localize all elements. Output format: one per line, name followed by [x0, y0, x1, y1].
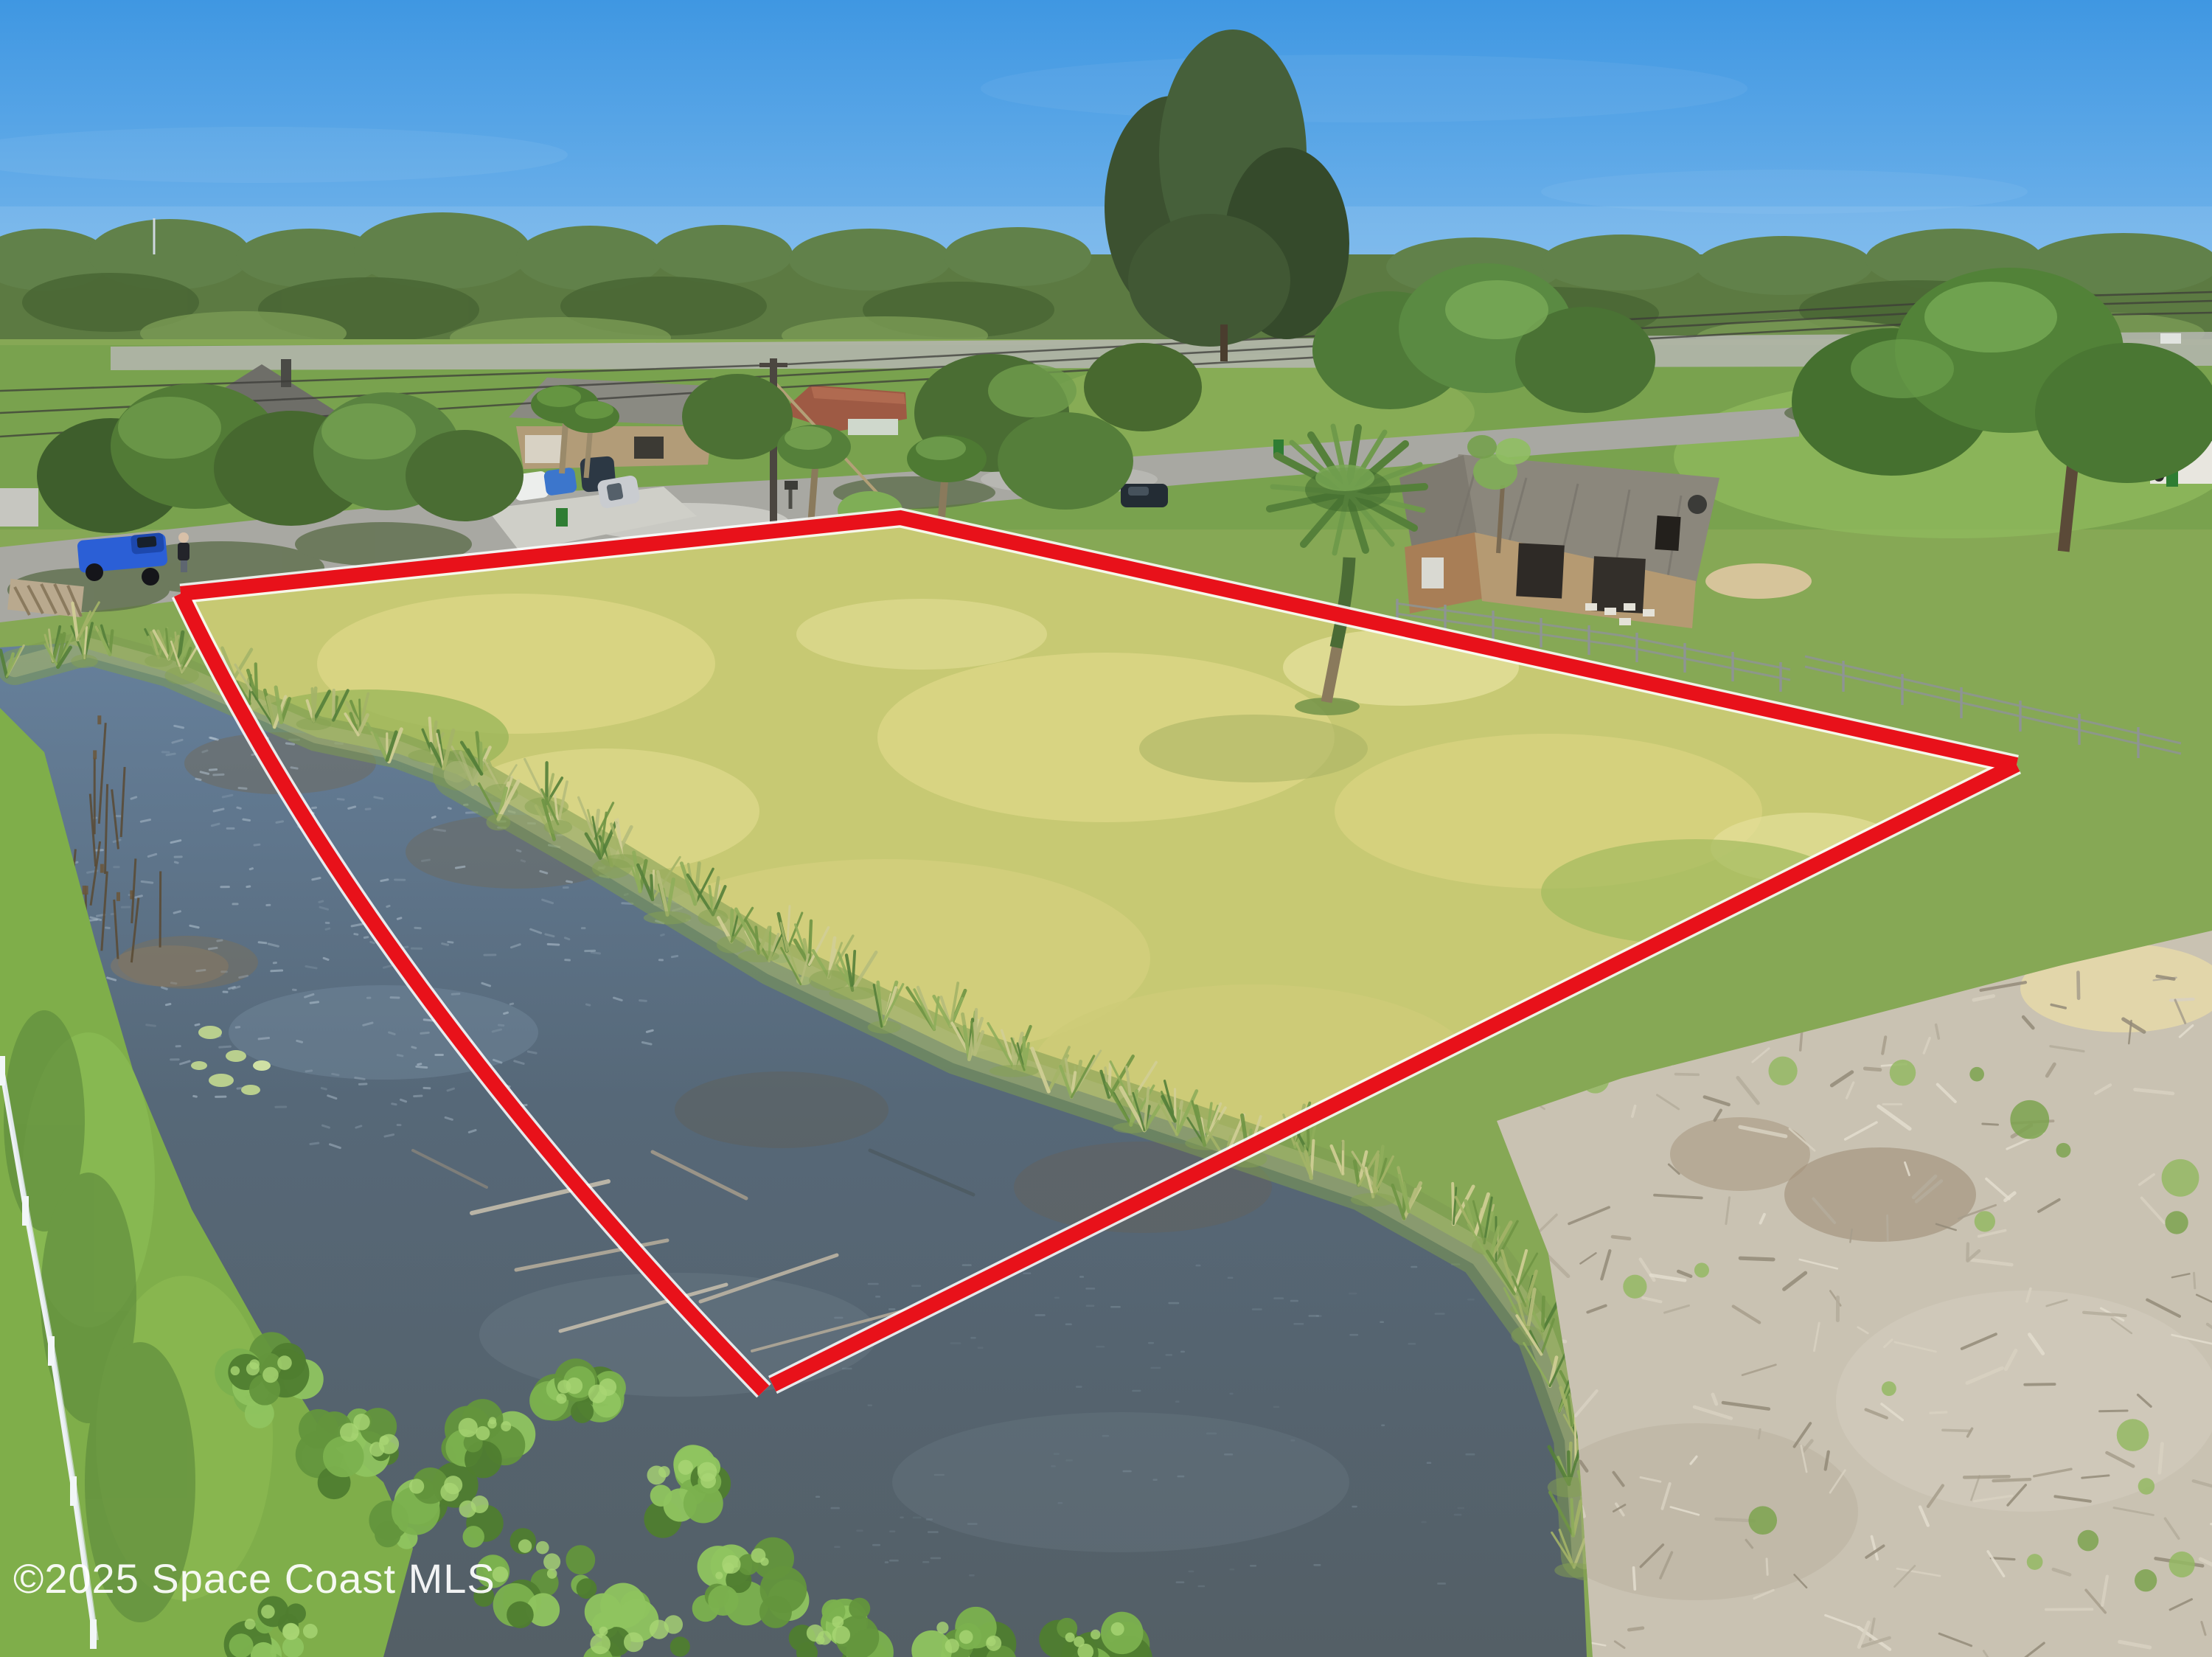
satellite-dish: [1688, 495, 1707, 514]
chimney: [281, 359, 291, 387]
shallow-bank: [111, 945, 229, 987]
palm-shadow: [1139, 715, 1368, 782]
watermark-text: ©2025 Space Coast MLS: [13, 1555, 495, 1602]
sand-driveway-patch: [1705, 563, 1812, 599]
screened-porch-opening: [1516, 543, 1565, 598]
aerial-photo-svg: ©2025 Space Coast MLS: [0, 0, 2212, 1657]
aerial-photo: ©2025 Space Coast MLS: [0, 0, 2212, 1657]
privacy-fence: [0, 488, 38, 527]
